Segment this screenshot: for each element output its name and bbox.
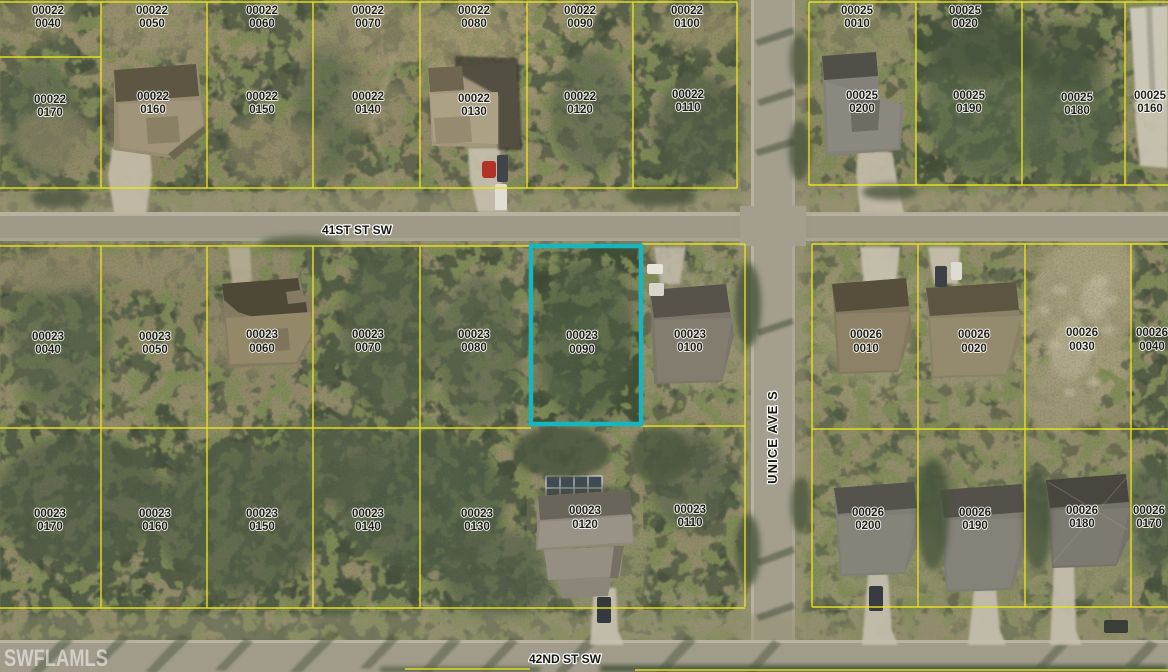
svg-text:00022: 00022: [564, 91, 596, 103]
svg-text:0190: 0190: [956, 103, 982, 115]
svg-text:00025: 00025: [841, 5, 874, 17]
svg-text:0060: 0060: [249, 343, 275, 355]
svg-text:00022: 00022: [671, 5, 703, 17]
svg-text:0010: 0010: [853, 343, 879, 355]
svg-text:00022: 00022: [34, 94, 66, 106]
svg-text:00023: 00023: [352, 329, 384, 341]
svg-text:00022: 00022: [672, 89, 704, 101]
svg-text:0200: 0200: [849, 103, 875, 115]
svg-text:UNICE AVE S: UNICE AVE S: [765, 390, 780, 484]
svg-text:0160: 0160: [140, 104, 166, 116]
svg-text:00022: 00022: [352, 5, 384, 17]
svg-text:0180: 0180: [1069, 518, 1095, 530]
svg-text:00023: 00023: [461, 508, 493, 520]
svg-text:0040: 0040: [35, 18, 61, 30]
svg-text:00022: 00022: [137, 91, 169, 103]
svg-text:0200: 0200: [855, 520, 881, 532]
svg-text:0120: 0120: [567, 104, 593, 116]
svg-text:0020: 0020: [952, 18, 978, 30]
svg-text:0150: 0150: [249, 521, 275, 533]
svg-text:00026: 00026: [852, 507, 884, 519]
svg-text:00023: 00023: [674, 329, 706, 341]
svg-text:00025: 00025: [953, 90, 986, 102]
svg-text:0140: 0140: [355, 104, 381, 116]
svg-text:0090: 0090: [569, 344, 595, 356]
svg-text:00022: 00022: [246, 5, 278, 17]
svg-text:00025: 00025: [949, 5, 982, 17]
svg-text:42ND ST SW: 42ND ST SW: [529, 652, 602, 666]
svg-text:0110: 0110: [678, 517, 703, 529]
svg-text:0140: 0140: [355, 521, 381, 533]
svg-text:00026: 00026: [959, 507, 991, 519]
svg-text:0180: 0180: [1064, 105, 1090, 117]
svg-text:0100: 0100: [674, 18, 700, 30]
svg-text:00023: 00023: [139, 508, 171, 520]
svg-text:0120: 0120: [572, 519, 598, 531]
svg-text:00023: 00023: [569, 505, 601, 517]
svg-text:00022: 00022: [458, 93, 490, 105]
svg-text:0150: 0150: [249, 104, 275, 116]
svg-text:0110: 0110: [676, 102, 701, 114]
svg-text:0130: 0130: [464, 521, 490, 533]
svg-text:00023: 00023: [34, 508, 66, 520]
svg-text:00023: 00023: [139, 331, 171, 343]
svg-text:0080: 0080: [461, 18, 487, 30]
svg-text:00023: 00023: [352, 508, 384, 520]
svg-text:00022: 00022: [246, 91, 278, 103]
svg-text:0170: 0170: [1136, 518, 1162, 530]
svg-text:0190: 0190: [962, 520, 988, 532]
svg-text:0050: 0050: [139, 18, 165, 30]
svg-text:00022: 00022: [32, 5, 64, 17]
svg-text:00026: 00026: [1066, 327, 1098, 339]
svg-text:0050: 0050: [142, 344, 168, 356]
svg-text:0130: 0130: [461, 106, 487, 118]
svg-text:0030: 0030: [1069, 341, 1095, 353]
svg-text:00026: 00026: [1066, 505, 1098, 517]
svg-text:0020: 0020: [961, 343, 987, 355]
svg-text:00026: 00026: [1133, 505, 1165, 517]
svg-text:00023: 00023: [674, 504, 706, 516]
svg-text:0060: 0060: [249, 18, 275, 30]
svg-text:0080: 0080: [461, 342, 487, 354]
svg-text:0090: 0090: [567, 18, 593, 30]
svg-text:0170: 0170: [37, 107, 63, 119]
svg-text:00022: 00022: [352, 91, 384, 103]
svg-text:0160: 0160: [1137, 103, 1163, 115]
svg-text:0010: 0010: [844, 18, 870, 30]
svg-text:0040: 0040: [1139, 341, 1165, 353]
svg-text:00023: 00023: [458, 329, 490, 341]
svg-text:00023: 00023: [566, 330, 598, 342]
svg-text:41ST ST SW: 41ST ST SW: [322, 223, 393, 237]
svg-text:00025: 00025: [846, 90, 879, 102]
svg-text:00025: 00025: [1134, 90, 1167, 102]
svg-text:0160: 0160: [142, 521, 168, 533]
svg-text:00026: 00026: [958, 329, 990, 341]
svg-text:00025: 00025: [1061, 92, 1094, 104]
svg-text:00022: 00022: [458, 5, 490, 17]
svg-text:0040: 0040: [35, 344, 61, 356]
svg-text:00022: 00022: [136, 5, 168, 17]
svg-text:00023: 00023: [246, 329, 278, 341]
svg-text:00023: 00023: [32, 331, 64, 343]
svg-text:0070: 0070: [355, 18, 381, 30]
svg-text:0070: 0070: [355, 342, 381, 354]
svg-text:SWFLAMLS: SWFLAMLS: [4, 645, 108, 672]
svg-text:0170: 0170: [37, 521, 63, 533]
svg-text:00023: 00023: [246, 508, 278, 520]
svg-text:00026: 00026: [1136, 327, 1168, 339]
svg-text:00026: 00026: [850, 329, 882, 341]
svg-text:00022: 00022: [564, 5, 596, 17]
svg-text:0100: 0100: [677, 342, 703, 354]
